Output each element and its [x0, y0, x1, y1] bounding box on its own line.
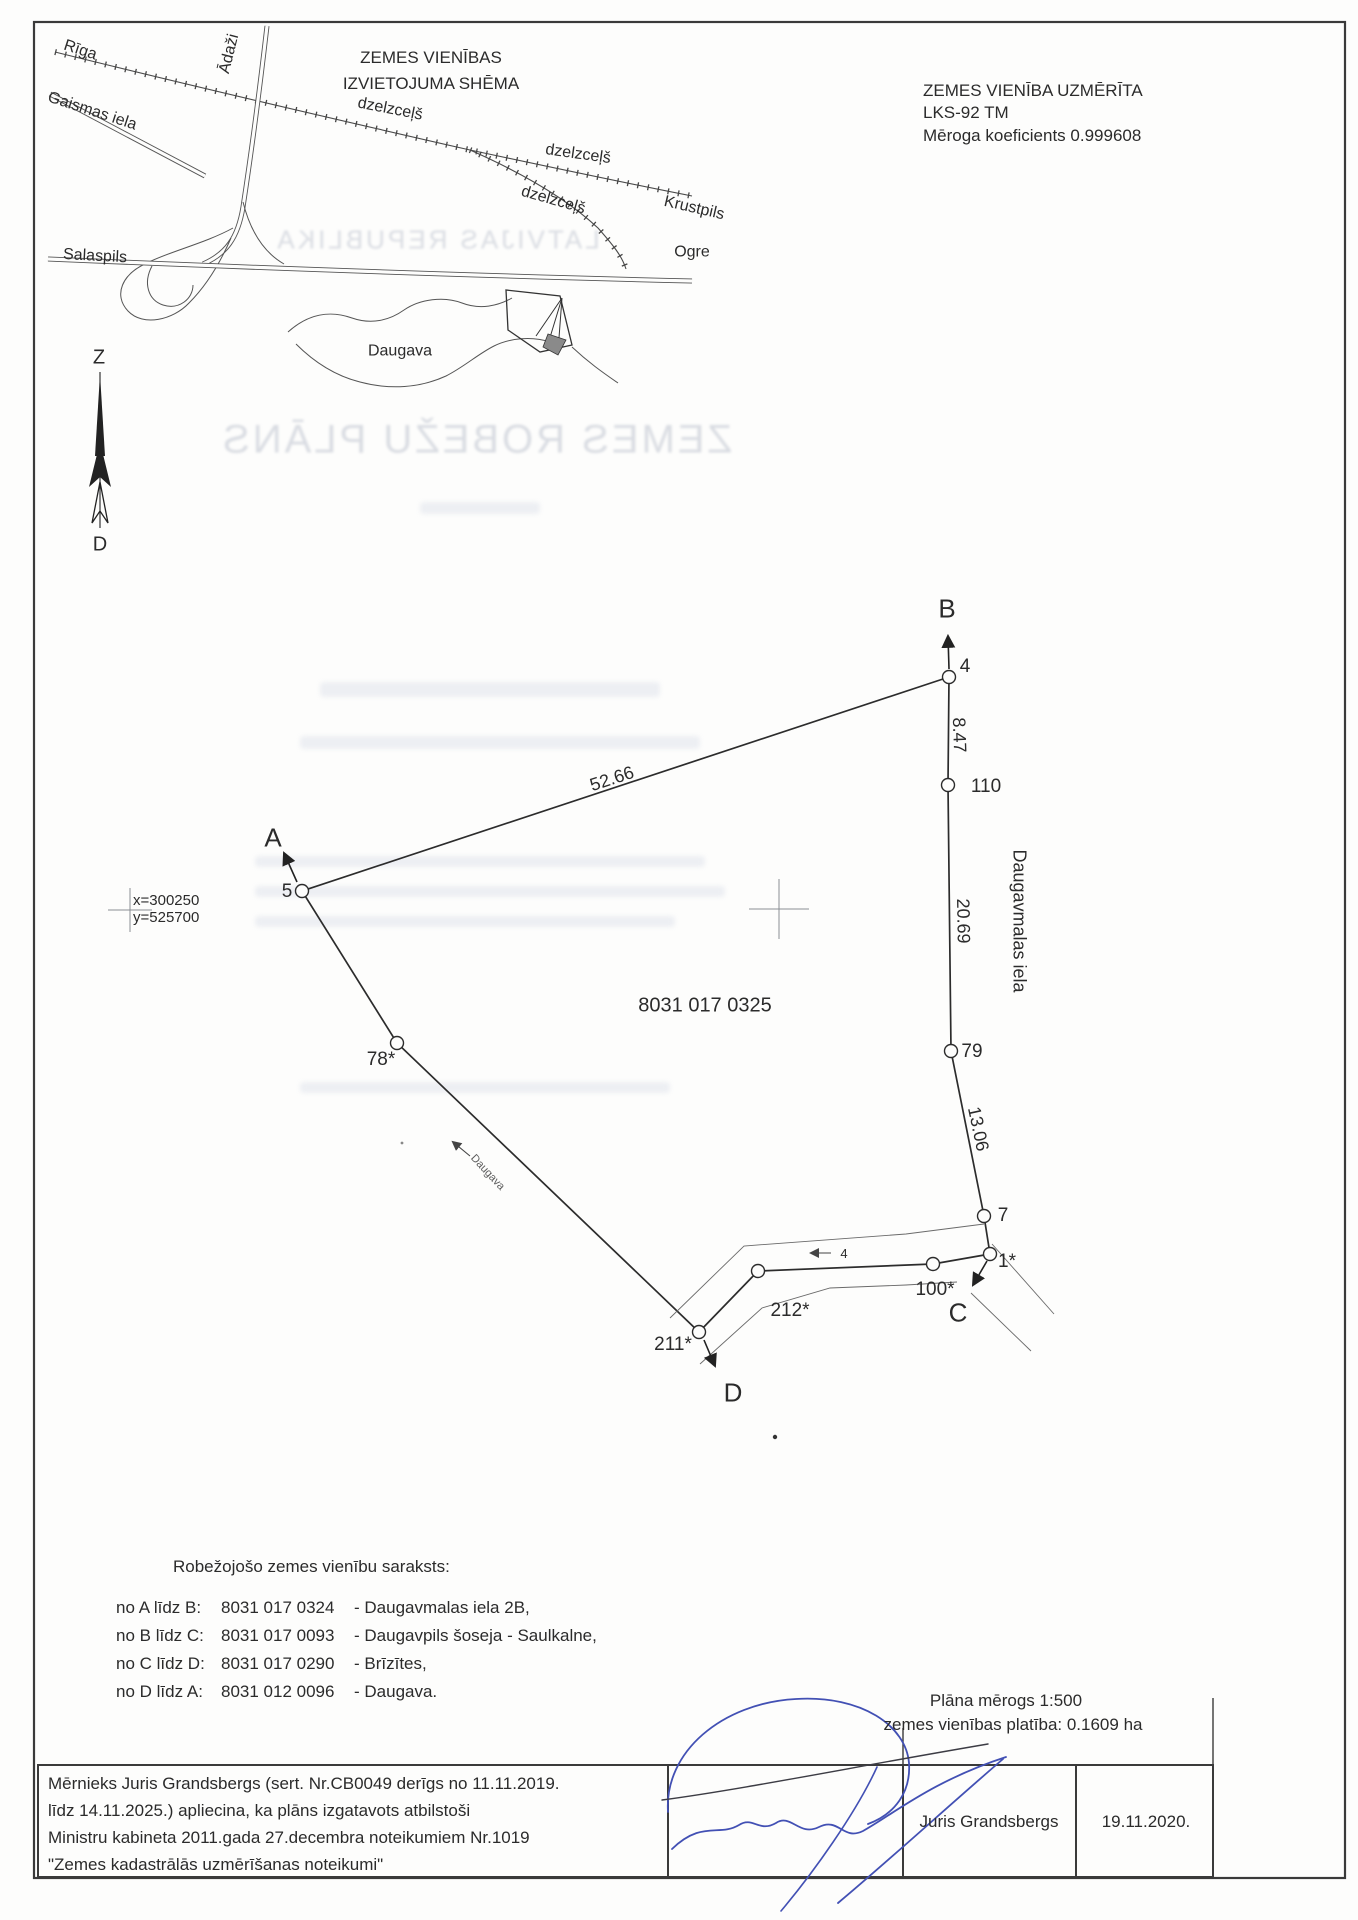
parcel-plan [108, 636, 1054, 1439]
border-list-code: 8031 017 0093 [221, 1626, 354, 1645]
grid-cross-icons [108, 879, 809, 939]
border-list-range: no A līdz B: [116, 1598, 221, 1617]
survey-info-line1: ZEMES VIENĪBA UZMĒRĪTA [923, 81, 1143, 100]
distance-label-4-110: 8.47 [949, 717, 969, 753]
map-parcel-marker [506, 290, 572, 355]
border-list-name: - Brīzītes, [354, 1654, 427, 1673]
stray-dot [773, 1435, 777, 1439]
corner-label-d: D [724, 1379, 743, 1406]
vertex-label-211: 211* [654, 1335, 692, 1355]
north-arrow-label-n: Z [93, 348, 105, 369]
corner-label-b: B [938, 595, 955, 622]
parcel-code-label: 8031 017 0325 [638, 996, 771, 1017]
survey-info-line3: Mēroga koeficients 0.999608 [923, 126, 1141, 145]
border-list-row: no A līdz B:8031 017 0324- Daugavmalas i… [116, 1598, 530, 1617]
border-list-code: 8031 012 0096 [221, 1682, 354, 1701]
grid-coordinate-x: x=300250 [133, 893, 199, 908]
surveyor-statement-line: Mērnieks Juris Grandsbergs (sert. Nr.CB0… [48, 1774, 560, 1793]
surveyor-statement-line: Ministru kabineta 2011.gada 27.decembra … [48, 1828, 530, 1847]
map-label-salaspils: Salaspils [63, 247, 128, 267]
distance-label-110-79: 20.69 [953, 898, 973, 943]
map-label-daugava: Daugava [368, 344, 432, 361]
schema-title-line2: IZVIETOJUMA SHĒMA [343, 75, 519, 93]
border-list-row: no B līdz C:8031 017 0093- Daugavpils šo… [116, 1626, 597, 1645]
survey-info-line2: LKS-92 TM [923, 103, 1009, 122]
vertex-label-7: 7 [998, 1206, 1009, 1226]
border-list-range: no C līdz D: [116, 1654, 221, 1673]
scanned-land-plan-page: LATVIJAS REPUBLIKA ZEMES ROBEŽU PLĀNS [0, 0, 1358, 1920]
flow-arrow-icons [453, 1142, 831, 1253]
map-label-ogre: Ogre [674, 245, 710, 262]
vertex-label-1: 1* [998, 1252, 1016, 1272]
surveyor-statement-line: līdz 14.11.2025.) apliecina, ka plāns iz… [48, 1801, 470, 1820]
road-marker-label: 4 [840, 1247, 847, 1261]
vertex-label-78: 78* [367, 1050, 396, 1070]
border-list-name: - Daugavpils šoseja - Saulkalne, [354, 1626, 597, 1645]
vertex-label-110: 110 [971, 777, 1001, 797]
vertex-label-5: 5 [282, 882, 293, 902]
vertex-label-4: 4 [960, 657, 971, 677]
surveyor-statement-line: "Zemes kadastrālās uzmērīšanas noteikumi… [48, 1855, 383, 1874]
footer-date: 19.11.2020. [1102, 1813, 1191, 1831]
plan-scale-label: Plāna mērogs 1:500 [930, 1692, 1082, 1710]
north-arrow-icon [89, 372, 111, 528]
corner-arrow-icons [284, 636, 987, 1366]
corner-label-c: C [949, 1299, 968, 1326]
border-list-code: 8031 017 0324 [221, 1598, 354, 1617]
border-list-row: no C līdz D:8031 017 0290- Brīzītes, [116, 1654, 427, 1673]
vertex-label-212: 212* [770, 1301, 809, 1321]
stray-speck [401, 1142, 404, 1145]
border-list-code: 8031 017 0290 [221, 1654, 354, 1673]
border-list-range: no B līdz C: [116, 1626, 221, 1645]
vertex-label-100: 100* [915, 1280, 954, 1300]
street-label-daugavmalas-iela: Daugavmalas iela [1010, 849, 1029, 992]
border-list-name: - Daugava. [354, 1682, 437, 1701]
corner-label-a: A [264, 824, 281, 851]
border-list-row: no D līdz A:8031 012 0096- Daugava. [116, 1682, 437, 1701]
surveyor-name: Juris Grandsbergs [920, 1813, 1059, 1831]
grid-coordinate-y: y=525700 [133, 910, 199, 925]
north-arrow-label-s: D [93, 535, 107, 556]
schema-title-line1: ZEMES VIENĪBAS [360, 49, 502, 67]
border-list-range: no D līdz A: [116, 1682, 221, 1701]
vertex-label-79: 79 [961, 1042, 982, 1062]
border-list-heading: Robežojošo zemes vienību saraksts: [173, 1557, 450, 1576]
border-list-name: - Daugavmalas iela 2B, [354, 1598, 530, 1617]
parcel-area-label: zemes vienības platība: 0.1609 ha [884, 1716, 1143, 1734]
